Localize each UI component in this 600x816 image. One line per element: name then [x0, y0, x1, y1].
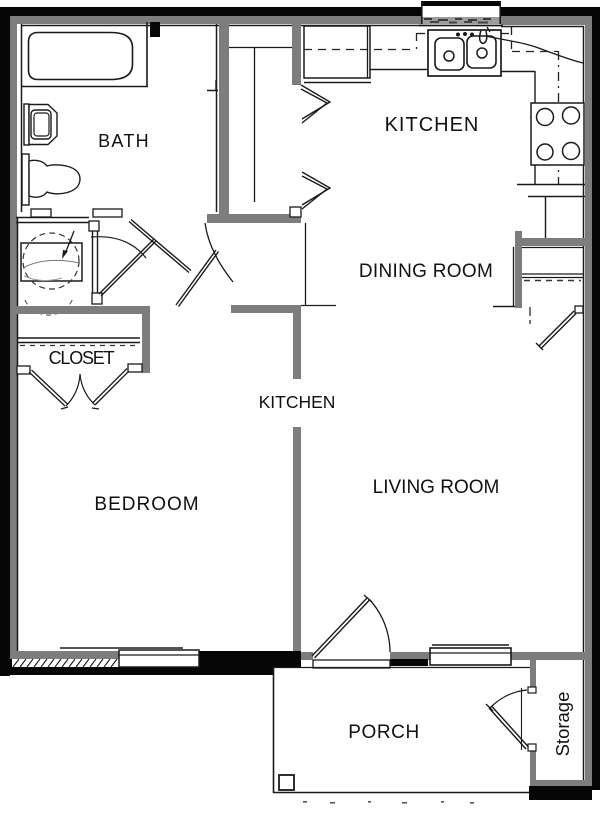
svg-text:LIVING ROOM: LIVING ROOM: [373, 477, 500, 498]
svg-text:Storage: Storage: [552, 692, 573, 757]
svg-text:KITCHEN: KITCHEN: [259, 392, 336, 412]
svg-text:CLOSET: CLOSET: [49, 348, 115, 368]
svg-text:BEDROOM: BEDROOM: [94, 494, 199, 515]
svg-text:PORCH: PORCH: [348, 722, 420, 743]
svg-text:KITCHEN: KITCHEN: [385, 114, 480, 136]
svg-text:DINING ROOM: DINING ROOM: [359, 261, 493, 282]
svg-text:BATH: BATH: [98, 131, 150, 151]
